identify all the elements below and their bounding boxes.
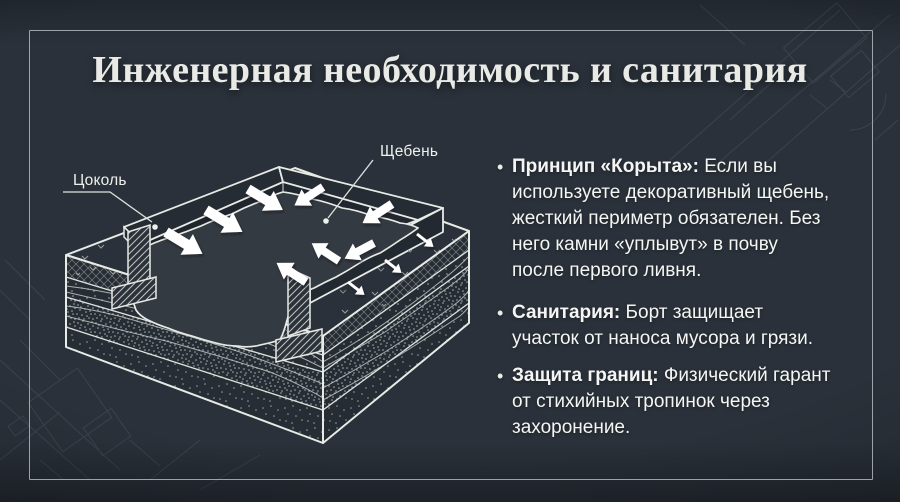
bullet-lead: Санитария: <box>512 302 620 323</box>
bullet-lead: Принцип «Корыта»: <box>512 156 699 177</box>
bullet-item: • Санитария: Борт защищает участок от на… <box>497 300 833 352</box>
leader-dot <box>323 218 329 224</box>
bullet-text: Принцип «Корыта»: Если вы используете де… <box>512 154 833 284</box>
bullet-marker: • <box>497 300 512 326</box>
bullet-marker: • <box>497 154 512 180</box>
bullet-marker: • <box>497 363 512 389</box>
label-gravel: Щебень <box>380 143 438 160</box>
label-plinth: Цоколь <box>73 172 127 189</box>
bullet-text: Санитария: Борт защищает участок от нано… <box>512 300 833 352</box>
bullet-lead: Защита границ: <box>512 365 659 386</box>
leader-dot <box>152 224 158 230</box>
bullet-item: • Принцип «Корыта»: Если вы используете … <box>497 154 833 284</box>
slide: Инженерная необходимость и санитария <box>0 0 900 502</box>
bullet-text: Защита границ: Физический гарант от стих… <box>512 363 833 441</box>
page-title: Инженерная необходимость и санитария <box>0 48 900 92</box>
foundation-diagram: Цоколь Щебень <box>40 140 480 470</box>
bullet-item: • Защита границ: Физический гарант от ст… <box>497 363 833 441</box>
bullet-list: • Принцип «Корыта»: Если вы используете … <box>497 154 833 441</box>
